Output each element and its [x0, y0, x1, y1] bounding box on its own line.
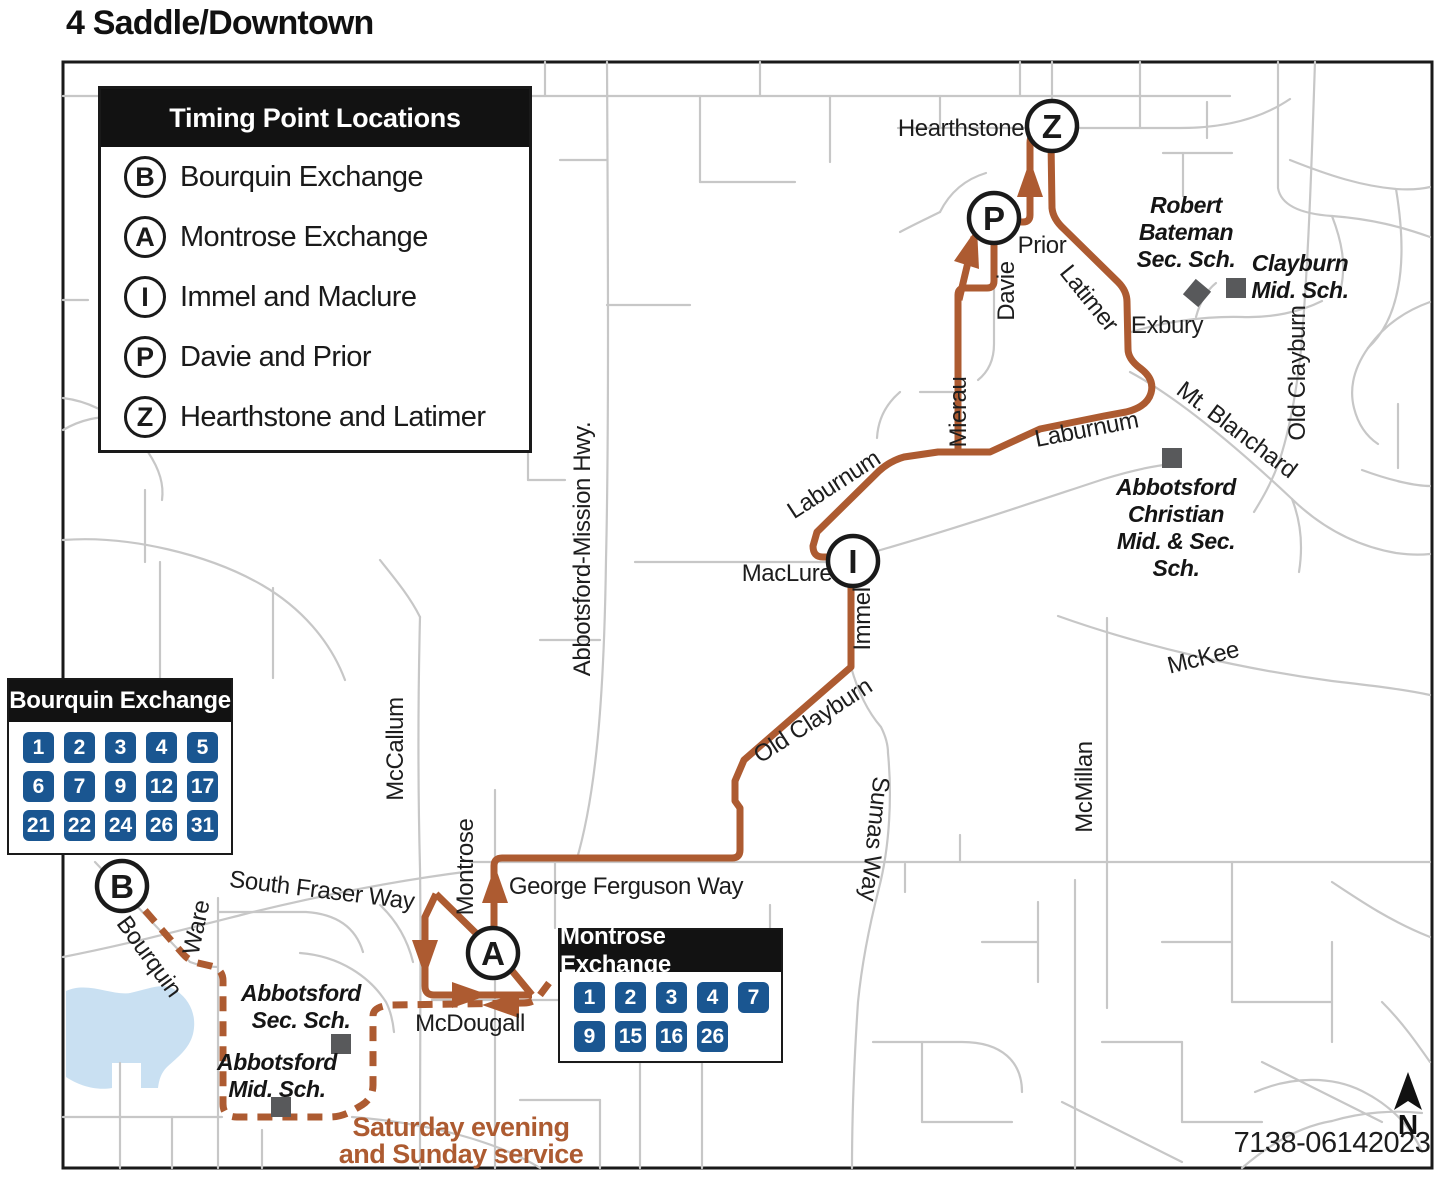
- legend-items: BBourquin ExchangeAMontrose ExchangeIImm…: [101, 147, 529, 447]
- bourquin-exchange-box: Bourquin Exchange 1234567912172122242631: [7, 678, 233, 855]
- svg-text:Z: Z: [1042, 108, 1062, 145]
- route-badge-31: 31: [187, 810, 218, 841]
- svg-text:P: P: [983, 200, 1005, 237]
- svg-text:A: A: [481, 935, 505, 972]
- street-label-maclure: MacLure: [742, 560, 833, 587]
- bourquin-exchange-title: Bourquin Exchange: [9, 680, 231, 722]
- timing-point-b: B: [97, 861, 147, 911]
- montrose-badge-row: 9151626: [574, 1021, 781, 1052]
- street-label-george-ferguson-way: George Ferguson Way: [509, 873, 744, 900]
- bourquin-badge-row: 12345: [23, 732, 231, 763]
- legend-item-label: Immel and Maclure: [180, 281, 416, 314]
- street-label-hearthstone: Hearthstone: [898, 115, 1024, 142]
- school-label-robert-bateman-sec-sch: RobertBatemanSec. Sch.: [1137, 192, 1236, 272]
- school-marker-abbotsford-christian-mid-sec-sch: [1162, 448, 1182, 468]
- route-badge-3: 3: [656, 982, 687, 1013]
- timing-point-p: P: [969, 193, 1019, 243]
- route-badge-7: 7: [64, 771, 95, 802]
- route-badge-1: 1: [23, 732, 54, 763]
- street-label-prior: Prior: [1018, 232, 1067, 259]
- timing-letter-icon-z: Z: [124, 396, 166, 438]
- bourquin-badge-row: 6791217: [23, 771, 231, 802]
- route-badge-4: 4: [146, 732, 177, 763]
- legend-item-montrose-exchange: AMontrose Exchange: [101, 207, 529, 267]
- bourquin-badge-row: 2122242631: [23, 810, 231, 841]
- route-badge-17: 17: [187, 771, 218, 802]
- transit-map-page: 4 Saddle/Downtown: [0, 0, 1440, 1179]
- school-marker-clayburn-mid-sch: [1226, 278, 1246, 298]
- route-badge-16: 16: [656, 1021, 687, 1052]
- route-badge-3: 3: [105, 732, 136, 763]
- street-label-abbotsford-mission-hwy: Abbotsford-Mission Hwy.: [569, 422, 596, 676]
- montrose-badge-row: 12347: [574, 982, 781, 1013]
- school-label-clayburn-mid-sch: ClayburnMid. Sch.: [1251, 250, 1348, 303]
- street-label-mierau: Mierau: [945, 377, 972, 448]
- timing-letter-icon-i: I: [124, 276, 166, 318]
- montrose-exchange-title: Montrose Exchange: [560, 930, 781, 972]
- service-note: Saturday eveningand Sunday service: [339, 1112, 584, 1169]
- route-badge-22: 22: [64, 810, 95, 841]
- route-badge-21: 21: [23, 810, 54, 841]
- timing-letter-icon-a: A: [124, 216, 166, 258]
- route-badge-5: 5: [187, 732, 218, 763]
- north-label: N: [1398, 1109, 1418, 1140]
- legend-item-davie-and-prior: PDavie and Prior: [101, 327, 529, 387]
- route-badge-26: 26: [146, 810, 177, 841]
- route-badge-6: 6: [23, 771, 54, 802]
- timing-point-legend: Timing Point Locations BBourquin Exchang…: [98, 86, 532, 453]
- street-label-exbury: Exbury: [1131, 312, 1204, 339]
- service-note-line: and Sunday service: [339, 1139, 584, 1169]
- route-badge-7: 7: [738, 982, 769, 1013]
- route-badge-2: 2: [615, 982, 646, 1013]
- route-badge-9: 9: [574, 1021, 605, 1052]
- route-badge-24: 24: [105, 810, 136, 841]
- timing-letter-icon-b: B: [124, 156, 166, 198]
- montrose-route-badges: 123479151626: [560, 972, 781, 1052]
- route-badge-12: 12: [146, 771, 177, 802]
- route-badge-9: 9: [105, 771, 136, 802]
- route-badge-4: 4: [697, 982, 728, 1013]
- legend-item-label: Hearthstone and Latimer: [180, 401, 485, 434]
- street-label-immel: Immel: [849, 587, 876, 650]
- street-label-mcdougall: McDougall: [415, 1010, 525, 1037]
- route-badge-15: 15: [615, 1021, 646, 1052]
- legend-item-label: Bourquin Exchange: [180, 161, 423, 194]
- bourquin-route-badges: 1234567912172122242631: [9, 722, 231, 841]
- legend-title: Timing Point Locations: [101, 89, 529, 147]
- street-label-montrose: Montrose: [452, 819, 479, 916]
- timing-point-a: A: [468, 928, 518, 978]
- legend-item-label: Montrose Exchange: [180, 221, 428, 254]
- svg-text:I: I: [848, 543, 857, 580]
- legend-item-label: Davie and Prior: [180, 341, 371, 374]
- montrose-exchange-box: Montrose Exchange 123479151626: [558, 928, 783, 1063]
- svg-text:B: B: [110, 868, 134, 905]
- legend-item-bourquin-exchange: BBourquin Exchange: [101, 147, 529, 207]
- route-badge-26: 26: [697, 1021, 728, 1052]
- street-label-mcmillan: McMillan: [1071, 741, 1098, 832]
- street-label-davie: Davie: [993, 261, 1020, 320]
- timing-point-z: Z: [1027, 101, 1077, 151]
- timing-point-i: I: [828, 536, 878, 586]
- school-label-abbotsford-mid-sch: AbbotsfordMid. Sch.: [216, 1049, 338, 1102]
- legend-item-immel-and-maclure: IImmel and Maclure: [101, 267, 529, 327]
- school-label-abbotsford-sec-sch: AbbotsfordSec. Sch.: [240, 980, 362, 1033]
- street-label-old-clayburn: Old Clayburn: [1284, 305, 1311, 440]
- legend-item-hearthstone-and-latimer: ZHearthstone and Latimer: [101, 387, 529, 447]
- timing-letter-icon-p: P: [124, 336, 166, 378]
- service-note-line: Saturday evening: [352, 1112, 569, 1142]
- street-label-mccallum: McCallum: [382, 697, 409, 800]
- route-badge-1: 1: [574, 982, 605, 1013]
- route-badge-2: 2: [64, 732, 95, 763]
